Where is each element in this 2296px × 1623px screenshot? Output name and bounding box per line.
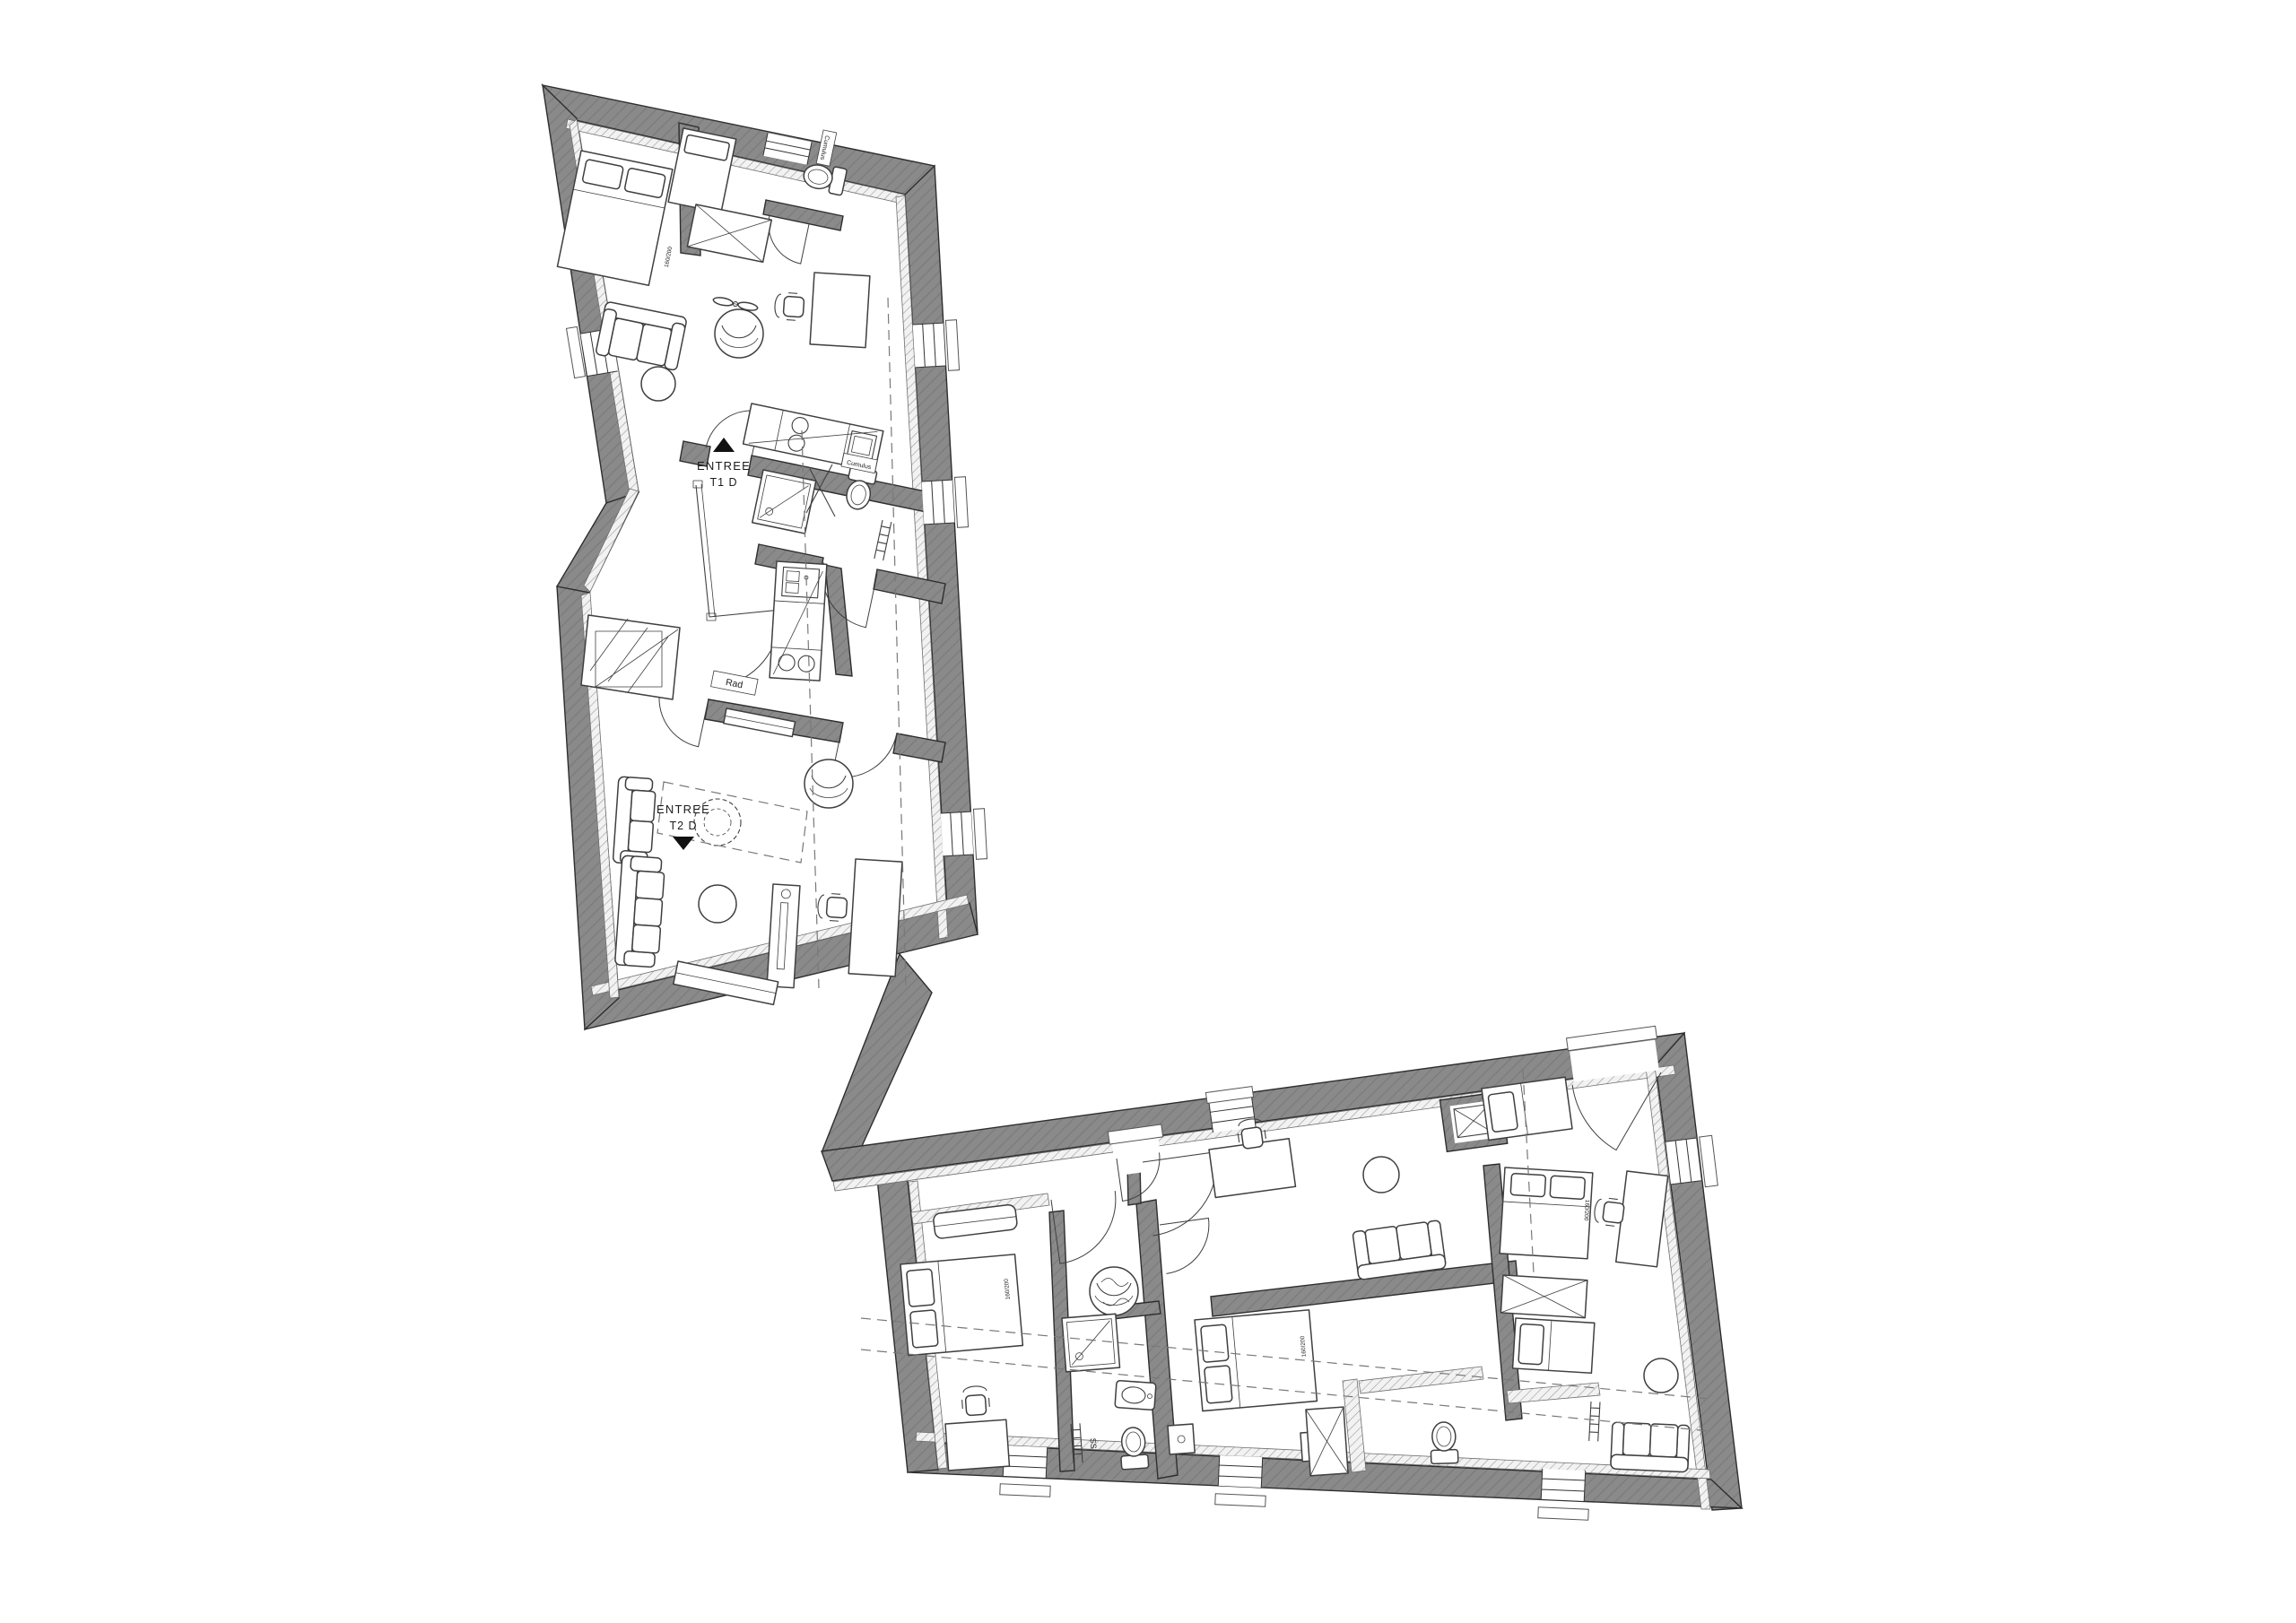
nightstand bbox=[1168, 1424, 1195, 1454]
window bbox=[941, 811, 974, 856]
entry-t2-marker: ENTREE T2 D bbox=[657, 803, 710, 850]
round-table bbox=[1644, 1358, 1678, 1393]
armchair bbox=[715, 309, 763, 358]
sofa bbox=[614, 855, 665, 968]
entry-t1-arrow-icon bbox=[713, 438, 735, 452]
stud-partition bbox=[1359, 1367, 1483, 1393]
door-swing bbox=[1160, 1219, 1209, 1274]
round-table bbox=[1363, 1157, 1399, 1193]
wardrobe bbox=[1500, 1275, 1587, 1318]
door-opening bbox=[1112, 1138, 1162, 1176]
shower bbox=[752, 470, 816, 534]
window-sill bbox=[1000, 1484, 1050, 1497]
sink bbox=[1115, 1381, 1156, 1410]
single-bed bbox=[1513, 1318, 1595, 1373]
double-bed: 160/200 bbox=[1195, 1310, 1317, 1411]
sofa bbox=[613, 777, 657, 865]
kitchen-counter bbox=[770, 561, 827, 681]
entry-t2-line1: ENTREE bbox=[657, 803, 710, 816]
towel-dryer-label: SS bbox=[1089, 1437, 1099, 1449]
partition bbox=[763, 200, 843, 230]
entry-t1-line1: ENTREE bbox=[697, 459, 751, 473]
floor-plan: Cumulus bbox=[0, 0, 2296, 1623]
desk bbox=[945, 1419, 1009, 1471]
window bbox=[913, 323, 946, 368]
toilet bbox=[1430, 1421, 1458, 1463]
shower bbox=[1062, 1314, 1120, 1372]
bed-size-label: 160/200 bbox=[1583, 1200, 1590, 1221]
stud-partition bbox=[1507, 1383, 1600, 1403]
armchair bbox=[1090, 1267, 1138, 1315]
furniture: Cumulus bbox=[557, 128, 1689, 1476]
desk bbox=[810, 273, 870, 348]
window bbox=[1541, 1469, 1585, 1501]
round-table bbox=[699, 885, 736, 923]
towel-radiator bbox=[1589, 1402, 1600, 1441]
entry-t2-arrow-icon bbox=[673, 837, 694, 850]
stairs bbox=[581, 615, 680, 699]
single-bed bbox=[1482, 1077, 1572, 1140]
link-diagonal-wall bbox=[822, 954, 932, 1166]
towel-radiator bbox=[874, 520, 891, 560]
office-chair bbox=[961, 1385, 990, 1416]
tv-stand bbox=[767, 884, 800, 988]
window-sill bbox=[1538, 1507, 1588, 1520]
wardrobe bbox=[1306, 1407, 1348, 1476]
floor-plan-page: Cumulus bbox=[0, 0, 2296, 1623]
window-sill bbox=[945, 320, 959, 371]
glazed-screen bbox=[693, 481, 716, 621]
bed-size-label: 160/200 bbox=[664, 246, 674, 268]
round-table bbox=[641, 367, 675, 401]
desk bbox=[848, 859, 902, 976]
annotations bbox=[657, 298, 1709, 1431]
entry-t2-line2: T2 D bbox=[669, 820, 697, 832]
window bbox=[1218, 1455, 1262, 1488]
radiator-tag: Rad bbox=[711, 671, 759, 695]
window bbox=[1665, 1138, 1701, 1185]
double-bed: 160/200 bbox=[900, 1254, 1022, 1356]
sofa bbox=[1611, 1422, 1690, 1472]
entry-t1-line2: T1 D bbox=[709, 476, 737, 489]
window-sill bbox=[973, 809, 987, 860]
window-sill bbox=[954, 477, 968, 528]
window bbox=[922, 480, 955, 525]
window-sill bbox=[1215, 1494, 1265, 1506]
double-bed: 160/200 bbox=[1500, 1167, 1593, 1259]
toilet bbox=[1119, 1427, 1149, 1470]
office-chair bbox=[774, 292, 804, 321]
armchair bbox=[804, 759, 853, 808]
office-chair bbox=[817, 893, 848, 922]
attic-line bbox=[802, 430, 819, 988]
desk bbox=[1616, 1171, 1668, 1267]
office-chair bbox=[1593, 1197, 1624, 1228]
